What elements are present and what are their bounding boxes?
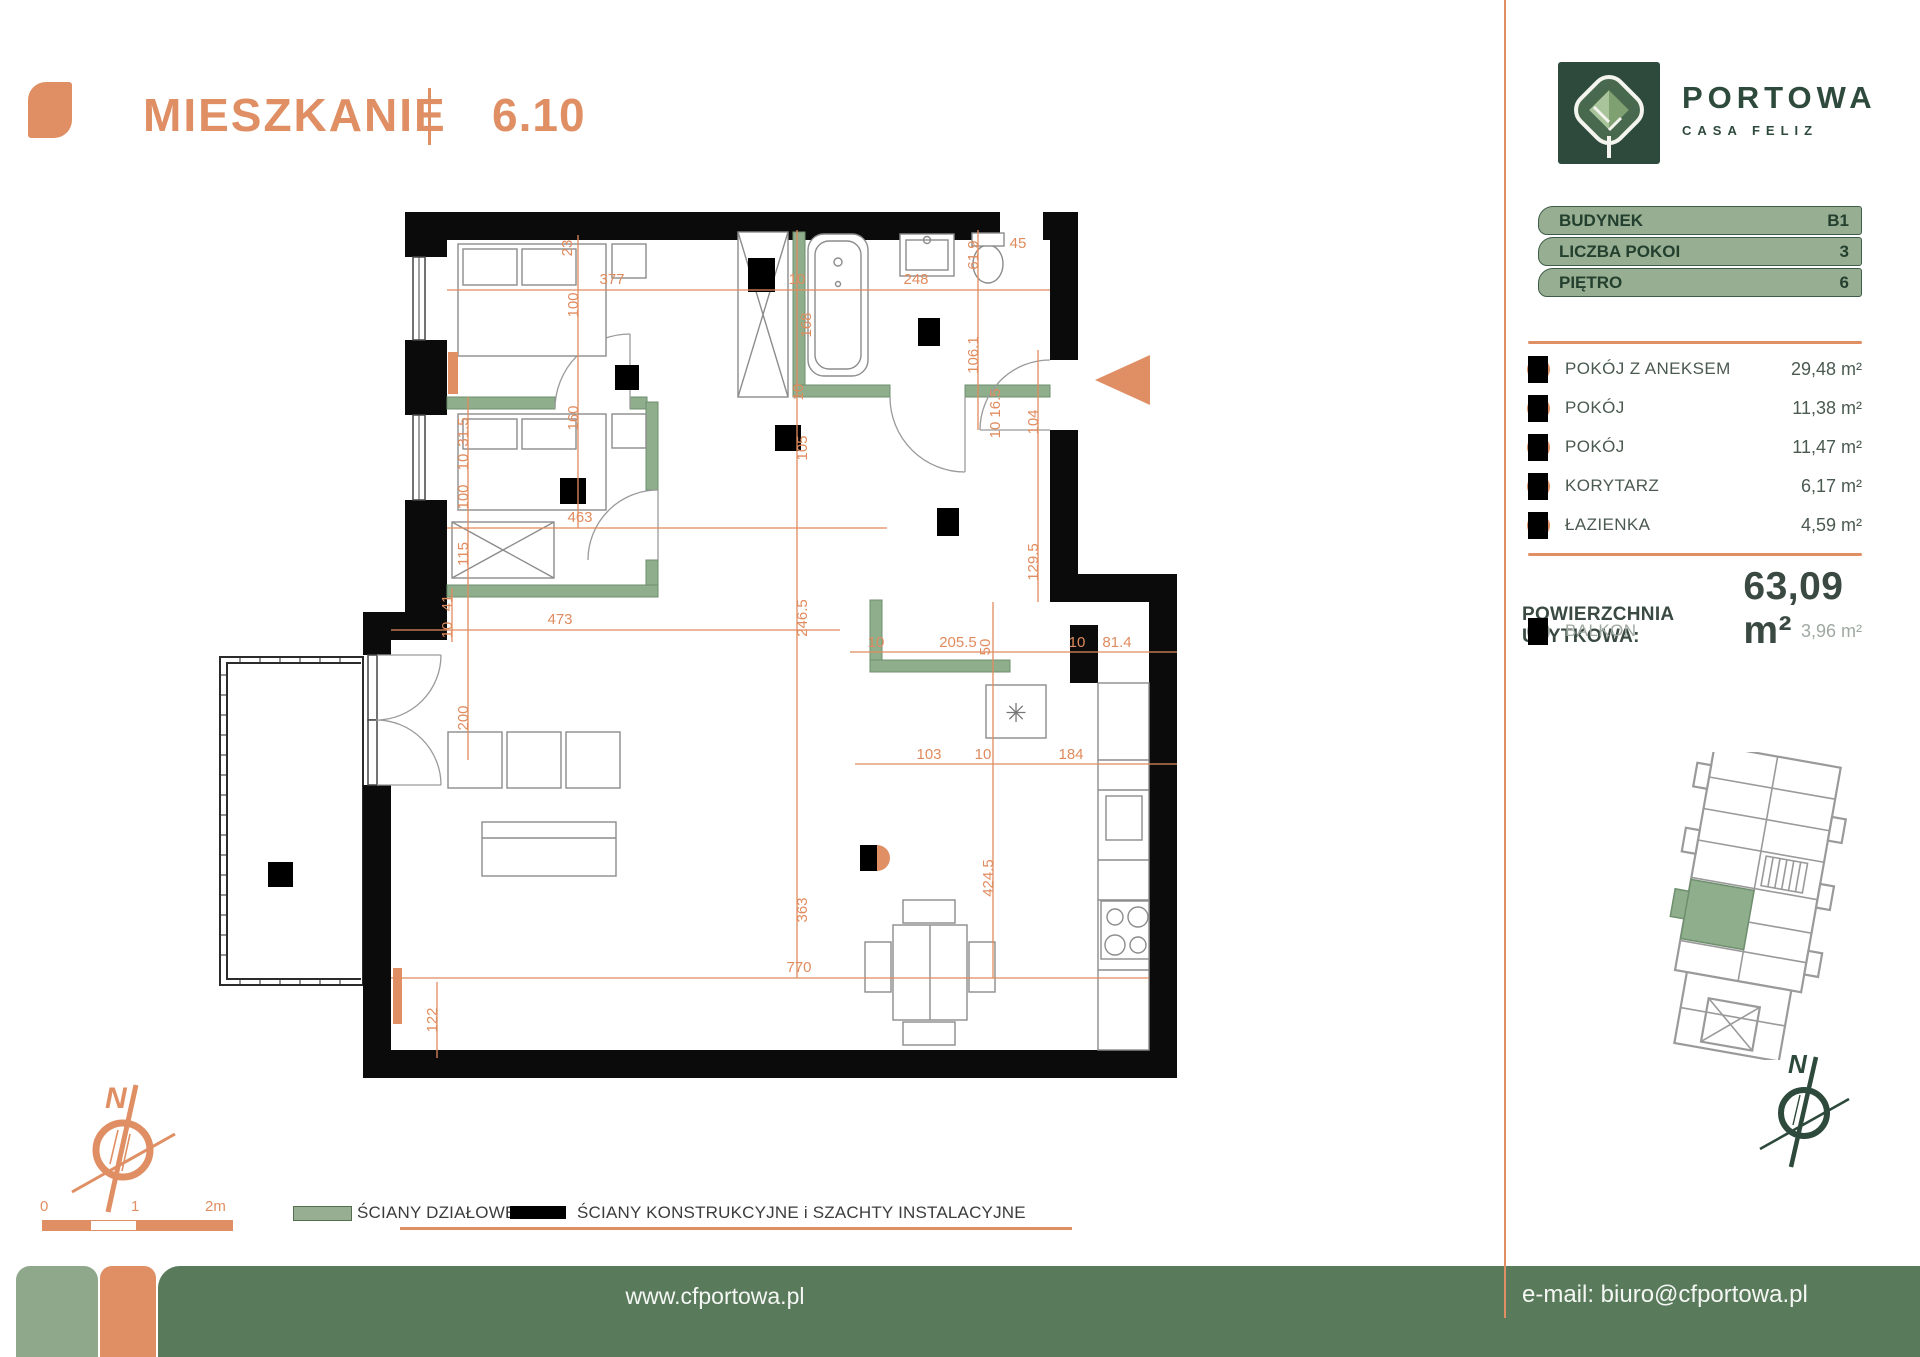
- room-label: POKÓJ: [1565, 437, 1625, 457]
- dimension-label: 463: [567, 509, 592, 526]
- dimension-label: 168: [798, 312, 815, 337]
- dimension-label: 160: [565, 405, 582, 430]
- dimension-label: 81.4: [1102, 634, 1131, 651]
- room-area: 11,47 m²: [1792, 437, 1862, 458]
- dimension-label: 10: [987, 422, 1004, 439]
- stove: [1101, 901, 1149, 959]
- badge-floor: PIĘTRO 6: [1538, 268, 1862, 297]
- room-row-4: KORYTARZ 6,17 m²: [1525, 471, 1862, 501]
- dimension-label: 50: [977, 639, 994, 656]
- highlighted-unit: [1681, 879, 1754, 949]
- title-divider: [428, 88, 431, 145]
- building-mini-map: [1588, 752, 1912, 1060]
- dimension-label: 473: [547, 611, 572, 628]
- entrance-arrow: [1095, 355, 1150, 405]
- scale-1: 1: [131, 1198, 139, 1215]
- scale-2m: 2m: [205, 1198, 226, 1215]
- dimension-label: 184: [1058, 746, 1083, 763]
- unit-number: 6.10: [492, 88, 586, 142]
- room-area: 4,59 m²: [1801, 515, 1862, 536]
- dimension-label: 105: [794, 435, 811, 460]
- footer-website-link[interactable]: www.cfportowa.pl: [400, 1283, 1030, 1310]
- balcony-door: [368, 655, 441, 785]
- compass-rose-small: N: [1740, 1035, 1880, 1185]
- footer-sage-block: [16, 1266, 98, 1357]
- room-marker-icon: [1525, 433, 1553, 461]
- dimension-label: 248: [903, 271, 928, 288]
- footer-orange-block: [100, 1266, 156, 1357]
- leaf-accent-shape: [28, 82, 72, 138]
- legend-underline: [400, 1227, 1072, 1230]
- dimension-label: 770: [786, 959, 811, 976]
- scale-0: 0: [40, 1198, 48, 1215]
- dimension-label: 45: [1010, 235, 1027, 252]
- room-area: 11,38 m²: [1792, 398, 1862, 419]
- scale-bar: [42, 1220, 233, 1231]
- dimension-label: 10: [439, 622, 456, 639]
- dimension-label: 115: [455, 542, 472, 566]
- legend-swatch-structural: [510, 1206, 566, 1219]
- fridge: [1106, 796, 1142, 840]
- legend-structural-label: ŚCIANY KONSTRUKCYJNE i SZACHTY INSTALACY…: [577, 1203, 1026, 1223]
- kitchen-counter: [1098, 683, 1149, 1050]
- room-row-2: POKÓJ 11,38 m²: [1525, 393, 1862, 423]
- page-vertical-divider: [1504, 0, 1506, 1318]
- badge-floor-label: PIĘTRO: [1559, 273, 1622, 293]
- floor-plan: ✳: [200, 200, 1200, 1090]
- sidebar-divider-top: [1528, 341, 1862, 344]
- dimension-label: 246.5: [794, 599, 811, 637]
- dimension-label: 16.5: [987, 388, 1004, 417]
- room-marker-icon: [1525, 355, 1553, 383]
- dimension-label: 377: [599, 271, 624, 288]
- tree-leaf-icon: [1558, 62, 1660, 164]
- footer-bar: [158, 1266, 1920, 1357]
- boiler-symbol: ✳: [1005, 698, 1027, 728]
- dimension-label: 363: [794, 897, 811, 922]
- logo-mark: [1558, 62, 1660, 164]
- dimension-label: 205.5: [939, 634, 977, 651]
- dimension-label: 122: [424, 1007, 441, 1032]
- dimension-label: 100: [455, 484, 472, 509]
- room-label: POKÓJ Z ANEKSEM: [1565, 359, 1731, 379]
- badge-rooms: LICZBA POKOI 3: [1538, 237, 1862, 266]
- dimension-label: 10: [790, 384, 807, 401]
- dimension-label: 106.1: [965, 336, 982, 374]
- compass-north-label: N: [105, 1082, 128, 1115]
- dimension-label: 10: [975, 746, 992, 763]
- room-row-5: ŁAZIENKA 4,59 m²: [1525, 510, 1862, 540]
- balcony-row: BALKON 3,96 m²: [1525, 616, 1862, 646]
- room-label: ŁAZIENKA: [1565, 515, 1650, 535]
- badge-building-value: B1: [1827, 211, 1849, 231]
- logo-text: PORTOWA CASA FELIZ: [1682, 80, 1877, 138]
- room-row-1: POKÓJ Z ANEKSEM 29,48 m²: [1525, 354, 1862, 384]
- dimension-label: 100: [565, 292, 582, 317]
- dimension-label: 23: [559, 240, 576, 257]
- brochure-page: MIESZKANIE 6.10 PORTOWA CASA FELIZ BUDYN…: [0, 0, 1920, 1357]
- balcony-area: 3,96 m²: [1801, 621, 1862, 642]
- badge-rooms-label: LICZBA POKOI: [1559, 242, 1680, 262]
- dimension-label: 200: [455, 705, 472, 730]
- dimension-label: 10: [868, 634, 885, 651]
- dimension-label: 10: [789, 271, 806, 288]
- room-row-3: POKÓJ 11,47 m²: [1525, 432, 1862, 462]
- sidebar-divider-bottom: [1528, 553, 1862, 556]
- dimension-label: 103: [916, 746, 941, 763]
- logo: PORTOWA CASA FELIZ: [1558, 62, 1898, 172]
- badge-floor-value: 6: [1840, 273, 1849, 293]
- badge-rooms-value: 3: [1840, 242, 1849, 262]
- badge-building-label: BUDYNEK: [1559, 211, 1643, 231]
- legend-partition-label: ŚCIANY DZIAŁOWE: [357, 1203, 517, 1223]
- logo-subtitle: CASA FELIZ: [1682, 123, 1877, 138]
- footer-email-link[interactable]: e-mail: biuro@cfportowa.pl: [1522, 1281, 1808, 1309]
- page-title: MIESZKANIE: [143, 88, 447, 142]
- room-marker-icon: [1525, 472, 1553, 500]
- room-area: 6,17 m²: [1801, 476, 1862, 497]
- dimension-label: 10: [455, 454, 472, 471]
- dimension-label: 41: [439, 595, 456, 612]
- logo-name: PORTOWA: [1682, 80, 1877, 116]
- legend-swatch-partition: [293, 1206, 352, 1221]
- dimension-label: 129.5: [1025, 543, 1042, 581]
- dimension-label: 61.9: [965, 240, 982, 269]
- compass-north-label: N: [1788, 1049, 1808, 1079]
- room-marker-icon: [1525, 511, 1553, 539]
- room-area: 29,48 m²: [1791, 359, 1862, 380]
- balcony-label: BALKON: [1565, 621, 1636, 641]
- room-label: POKÓJ: [1565, 398, 1625, 418]
- room-label: KORYTARZ: [1565, 476, 1659, 496]
- badge-building: BUDYNEK B1: [1538, 206, 1862, 235]
- dimension-label: 424.5: [980, 859, 997, 897]
- dimension-label: 31.5: [455, 417, 472, 446]
- balcony-shaft-marker: [268, 862, 293, 887]
- dimension-label: 104: [1025, 409, 1042, 434]
- balcony-outline: [220, 657, 363, 985]
- scale-bar-labels: 0 1 2m: [0, 1198, 260, 1218]
- balcony-marker-icon: [1525, 617, 1553, 645]
- room-marker-icon: [1525, 394, 1553, 422]
- dimension-label: 10: [1069, 634, 1086, 651]
